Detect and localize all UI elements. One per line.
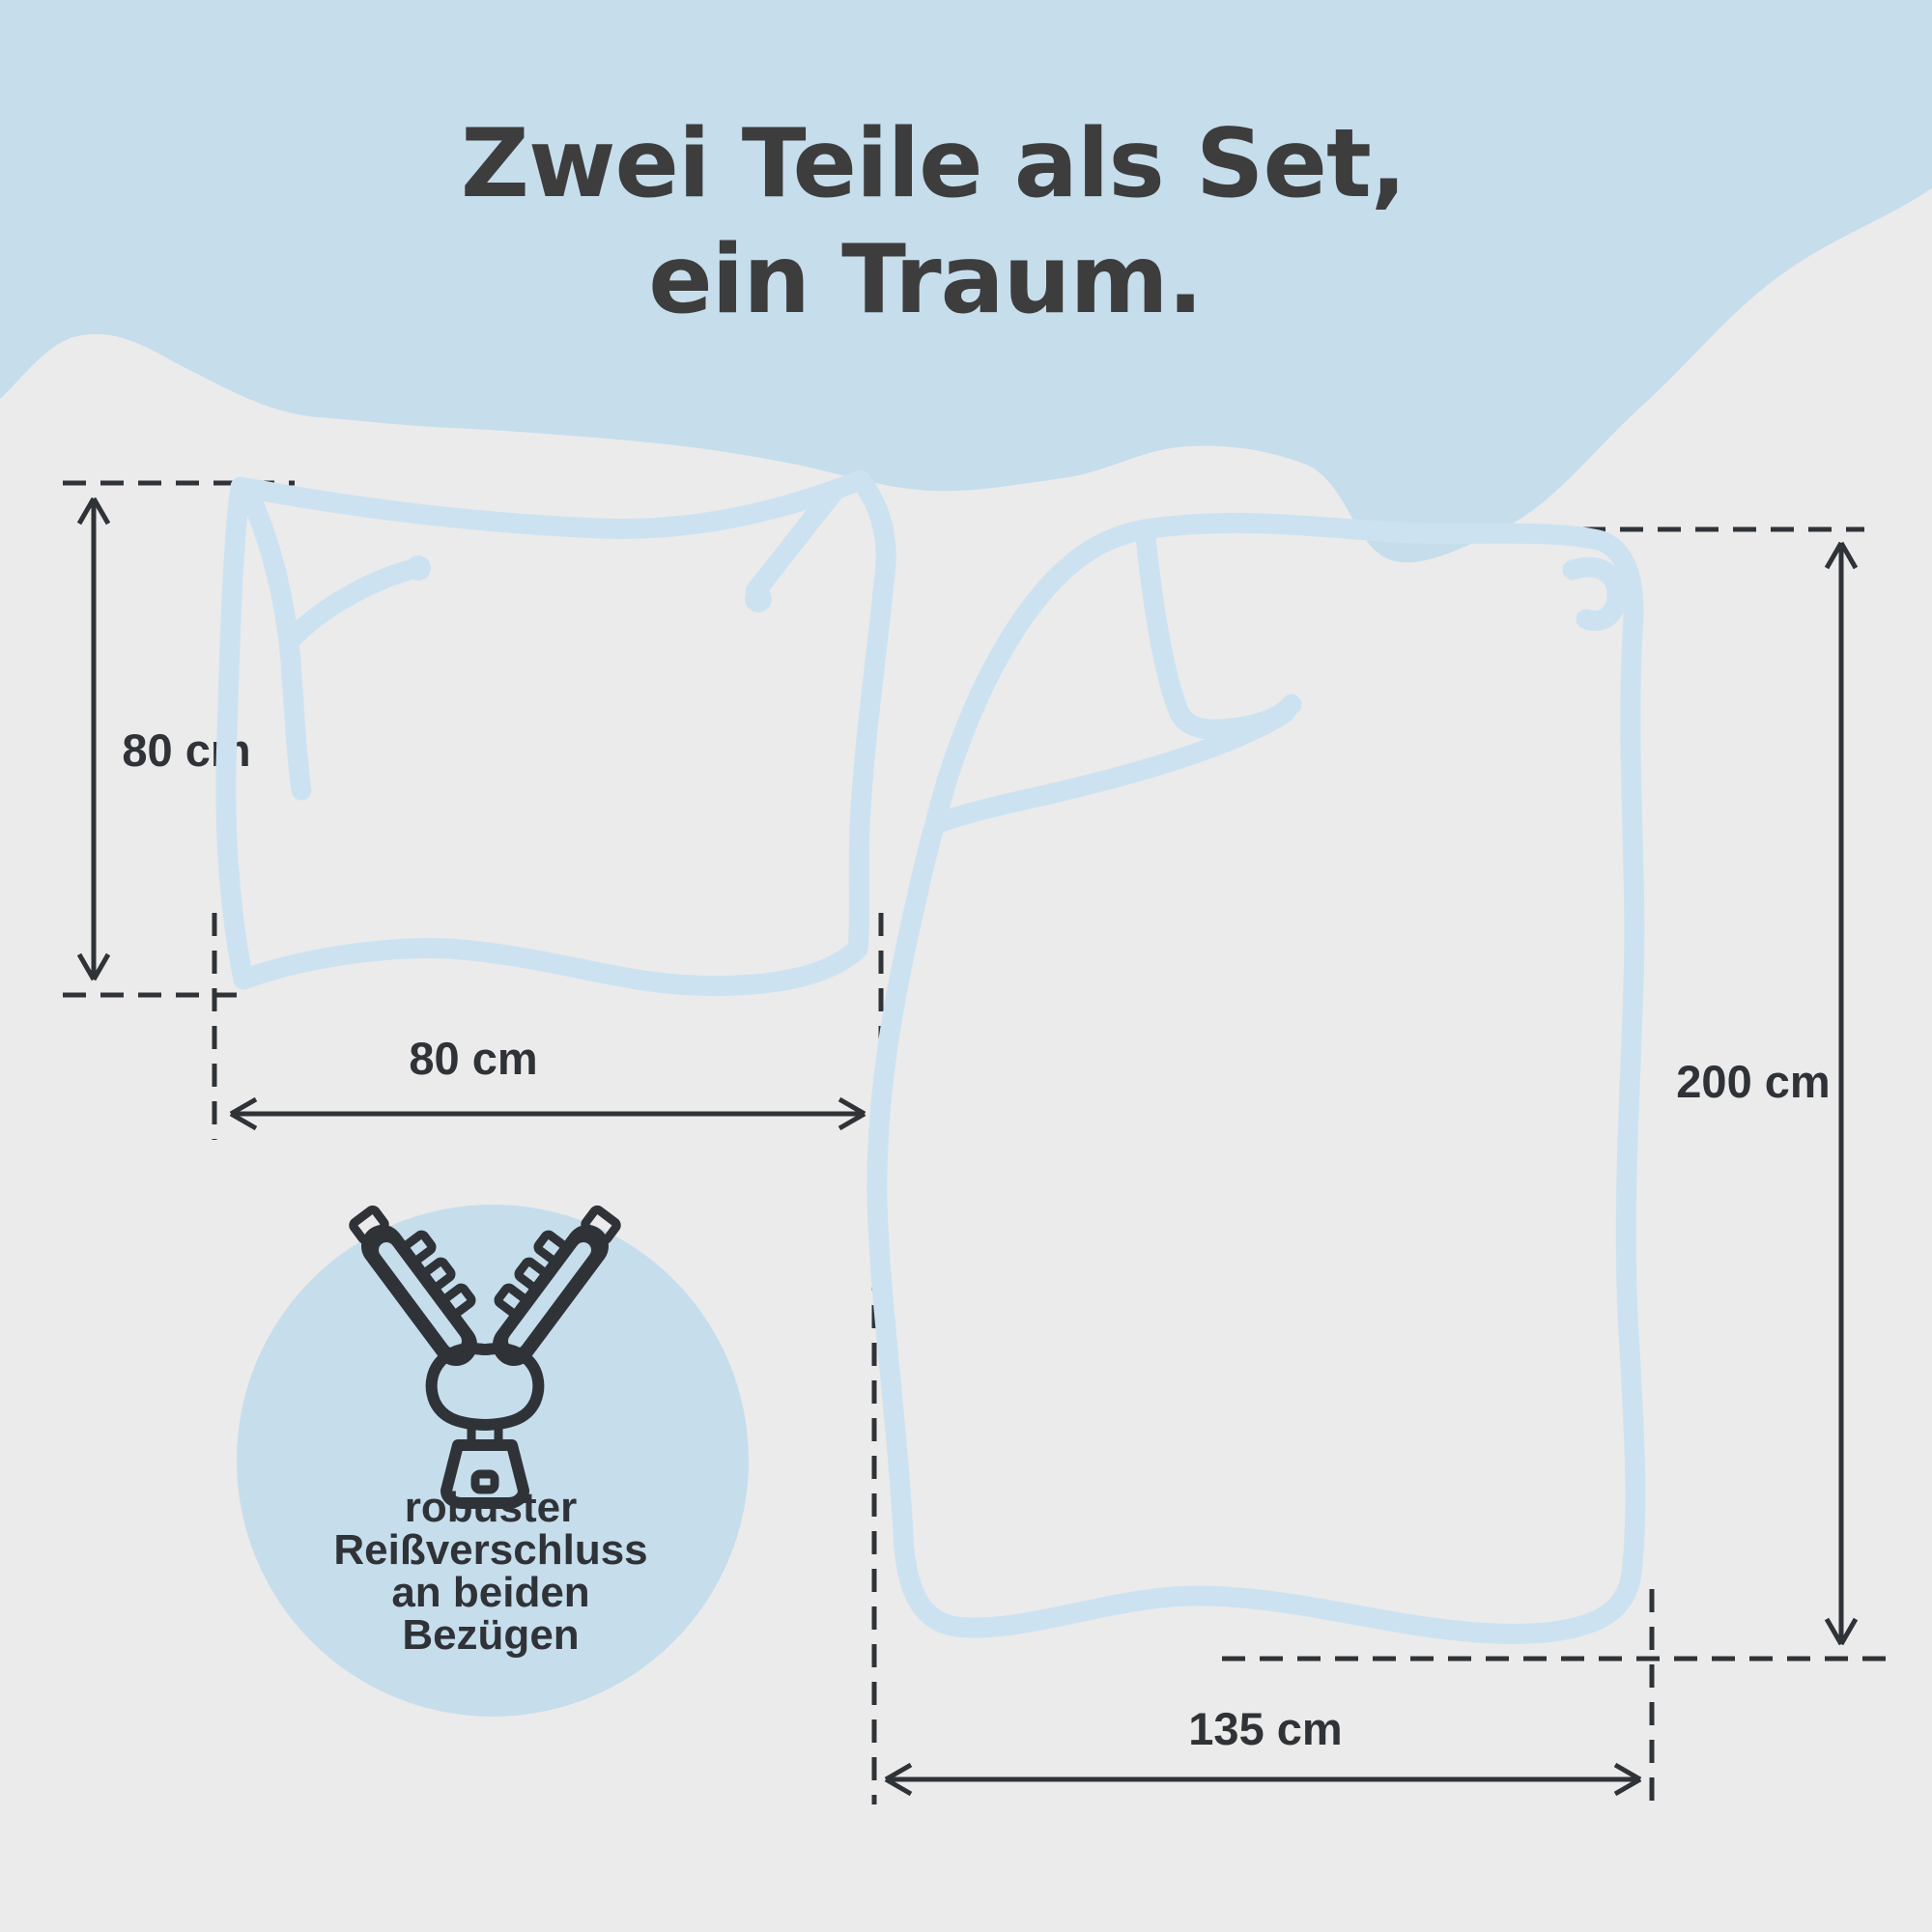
duvet-corner-hook xyxy=(1573,567,1617,621)
duvet-width-label: 135 cm xyxy=(1188,1703,1342,1754)
pillow-sketch xyxy=(226,480,886,985)
duvet-height-label: 200 cm xyxy=(1676,1056,1830,1107)
duvet-sketch xyxy=(877,523,1635,1634)
duvet-height-arrow xyxy=(1827,543,1856,1644)
duvet-outline xyxy=(877,523,1635,1634)
infographic-canvas: Zwei Teile als Set, ein Traum. 80 cm 80 … xyxy=(0,0,1932,1932)
badge-text-line-1: robuster xyxy=(405,1484,577,1531)
badge-text-line-3: an beiden xyxy=(391,1569,589,1616)
pillow-height-arrow xyxy=(79,498,108,980)
infographic: Zwei Teile als Set, ein Traum. 80 cm 80 … xyxy=(0,0,1932,1932)
duvet-fold-lower-edge xyxy=(939,713,1285,823)
feature-badge: robuster Reißverschluss an beiden Bezüge… xyxy=(237,1205,749,1717)
pillow-width-arrow xyxy=(231,1099,865,1128)
duvet-width-arrow xyxy=(886,1765,1640,1794)
badge-text-line-4: Bezügen xyxy=(402,1611,579,1659)
title-line-2: ein Traum. xyxy=(648,225,1203,335)
duvet-fold-crease xyxy=(1146,537,1292,729)
pillow-crease-end-dot xyxy=(406,555,431,581)
title-line-1: Zwei Teile als Set, xyxy=(461,109,1406,219)
pillow-width-label: 80 cm xyxy=(409,1033,537,1084)
pillow-crease-branch xyxy=(291,570,410,639)
badge-text-line-2: Reißverschluss xyxy=(333,1526,647,1574)
pillow-flap-end-dot xyxy=(745,585,772,612)
